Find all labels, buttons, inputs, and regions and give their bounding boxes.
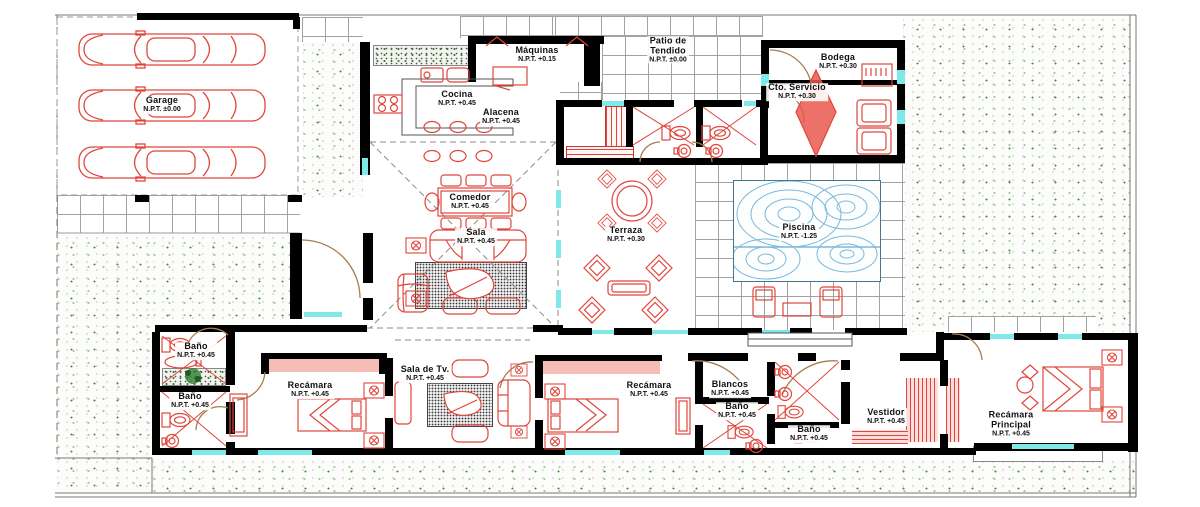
room-label-recamara-principal: Recámara Principal N.P.T. +0.45: [987, 410, 1036, 437]
tv-rug: [427, 383, 493, 427]
sala-rug: [415, 262, 527, 309]
entry-hall: [302, 233, 363, 330]
grass-left: [57, 235, 153, 492]
room-label-cto-servicio: Cto. Servicio N.P.T. +0.30: [766, 83, 828, 101]
room-label-bano-1: Baño N.P.T. +0.45: [175, 342, 217, 360]
room-label-sala-tv: Sala de Tv. N.P.T. +0.45: [399, 365, 452, 383]
room-label-bano-4: Baño N.P.T. +0.45: [788, 425, 830, 443]
room-label-vestidor: Vestidor N.P.T. +0.45: [865, 408, 907, 426]
room-label-bodega: Bodega N.P.T. +0.30: [817, 53, 859, 71]
vestidor-closet-bottom: [852, 430, 908, 444]
walk-tiles-top: [302, 17, 363, 42]
room-label-piscina: Piscina N.P.T. -1.25: [779, 223, 819, 241]
vestidor-closet-left: [906, 378, 938, 442]
closet-recamara1: [264, 359, 385, 372]
walkway-apron: [973, 446, 1103, 462]
room-label-blancos: Blancos N.P.T. +0.45: [709, 380, 751, 398]
room-label-alacena: Alacena N.P.T. +0.45: [480, 108, 522, 126]
grass-bottom-strip: [153, 459, 1138, 493]
grass-left-upper: [153, 235, 302, 325]
bath-planter: [162, 368, 226, 386]
room-label-comedor: Comedor N.P.T. +0.45: [448, 193, 493, 211]
room-label-patio: Patio de Tendido N.P.T. ±0.00: [647, 36, 689, 63]
room-label-terraza: Terraza N.P.T. +0.30: [605, 226, 647, 244]
room-label-cocina: Cocina N.P.T. +0.45: [436, 90, 478, 108]
closet-recamara2: [538, 361, 660, 374]
room-label-bano-2: Baño N.P.T. +0.45: [169, 392, 211, 410]
room-label-garage: Garage N.P.T. ±0.00: [141, 96, 183, 114]
driveway-tiles: [57, 195, 300, 233]
walk-tiles-wing: [948, 316, 1096, 333]
room-label-maquinas: Máquinas N.P.T. +0.15: [513, 46, 560, 64]
terraza-room: [558, 165, 695, 333]
stairs-landing: [566, 146, 634, 161]
room-label-recamara-2: Recámara N.P.T. +0.45: [625, 381, 674, 399]
grass-top-right: [903, 17, 1130, 333]
principal-closet: [946, 378, 960, 442]
kitchen-planter: [373, 45, 472, 66]
room-label-sala: Sala N.P.T. +0.45: [455, 228, 497, 246]
floor-plan: Garage N.P.T. ±0.00 Máquinas N.P.T. +0.1…: [0, 0, 1200, 507]
grass-side-yard: [303, 42, 363, 197]
room-label-recamara-1: Recámara N.P.T. +0.45: [286, 381, 335, 399]
room-label-bano-3: Baño N.P.T. +0.45: [716, 402, 758, 420]
